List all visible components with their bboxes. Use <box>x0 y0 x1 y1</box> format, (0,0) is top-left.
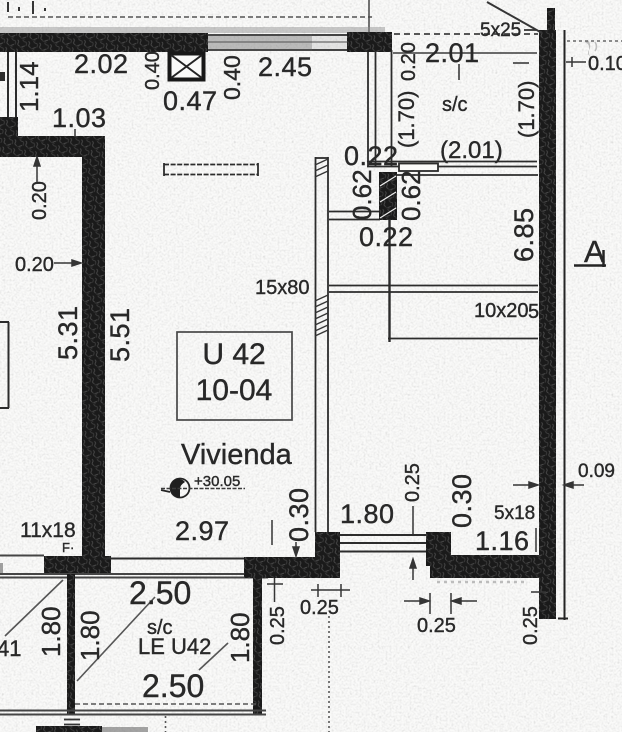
svg-text:10-04: 10-04 <box>196 374 273 407</box>
svg-text:0.30: 0.30 <box>284 487 314 542</box>
svg-text:(1.70): (1.70) <box>394 91 419 148</box>
svg-text:1.16: 1.16 <box>475 526 530 556</box>
svg-text:0.09: 0.09 <box>578 461 615 482</box>
svg-text:Vivienda: Vivienda <box>181 439 293 471</box>
svg-text:(2.01): (2.01) <box>440 137 503 164</box>
svg-text:0.22: 0.22 <box>359 222 414 252</box>
svg-text:+30.05: +30.05 <box>194 473 240 490</box>
svg-text:1.80: 1.80 <box>75 610 105 661</box>
svg-text:0.20: 0.20 <box>29 181 51 220</box>
svg-text:1.03: 1.03 <box>52 103 107 133</box>
svg-text:1.80: 1.80 <box>225 612 255 663</box>
svg-text:1.14: 1.14 <box>14 61 44 112</box>
svg-text:0.47: 0.47 <box>163 86 218 116</box>
svg-text:2.50: 2.50 <box>142 668 204 704</box>
svg-text:0.25: 0.25 <box>520 606 542 645</box>
svg-text:5.31: 5.31 <box>53 305 83 360</box>
svg-text:0.20: 0.20 <box>398 42 420 81</box>
svg-text:0.25: 0.25 <box>402 463 424 502</box>
svg-text:2.01: 2.01 <box>425 38 480 68</box>
svg-text:5x25: 5x25 <box>480 20 521 41</box>
svg-text:0.25: 0.25 <box>417 615 456 637</box>
svg-text:0.62: 0.62 <box>347 169 377 220</box>
svg-text:15x80: 15x80 <box>255 277 310 299</box>
svg-text:11x18: 11x18 <box>20 519 76 542</box>
svg-text:2.45: 2.45 <box>258 52 313 82</box>
svg-text:5.51: 5.51 <box>105 307 135 362</box>
svg-text:0.22: 0.22 <box>344 141 399 171</box>
svg-text:2.50: 2.50 <box>129 575 191 611</box>
svg-text:s/c: s/c <box>442 94 468 116</box>
svg-text:0.40: 0.40 <box>219 55 245 100</box>
svg-text:U 42: U 42 <box>202 338 265 371</box>
svg-text:0.25: 0.25 <box>267 606 289 645</box>
svg-text:A: A <box>584 234 605 269</box>
svg-text:0.25: 0.25 <box>300 597 339 619</box>
svg-text:2.02: 2.02 <box>74 49 129 79</box>
svg-text:0.30: 0.30 <box>447 473 477 528</box>
svg-text:F·: F· <box>62 540 74 555</box>
svg-text:LE U42: LE U42 <box>138 634 211 659</box>
svg-text:(1.70): (1.70) <box>514 81 539 138</box>
svg-text:0.62: 0.62 <box>396 170 426 221</box>
svg-text:0.10: 0.10 <box>588 53 622 75</box>
svg-text:0.40: 0.40 <box>142 51 164 90</box>
svg-text:6.85: 6.85 <box>509 207 539 262</box>
svg-text:5: 5 <box>528 301 539 323</box>
svg-text:1.80: 1.80 <box>36 606 66 657</box>
svg-text:2.97: 2.97 <box>175 516 230 546</box>
svg-text:41: 41 <box>0 636 21 661</box>
svg-text:0.20: 0.20 <box>15 254 54 276</box>
svg-text:1.80: 1.80 <box>340 499 395 529</box>
svg-text:10x20: 10x20 <box>474 300 529 322</box>
svg-text:5x18: 5x18 <box>494 503 535 524</box>
